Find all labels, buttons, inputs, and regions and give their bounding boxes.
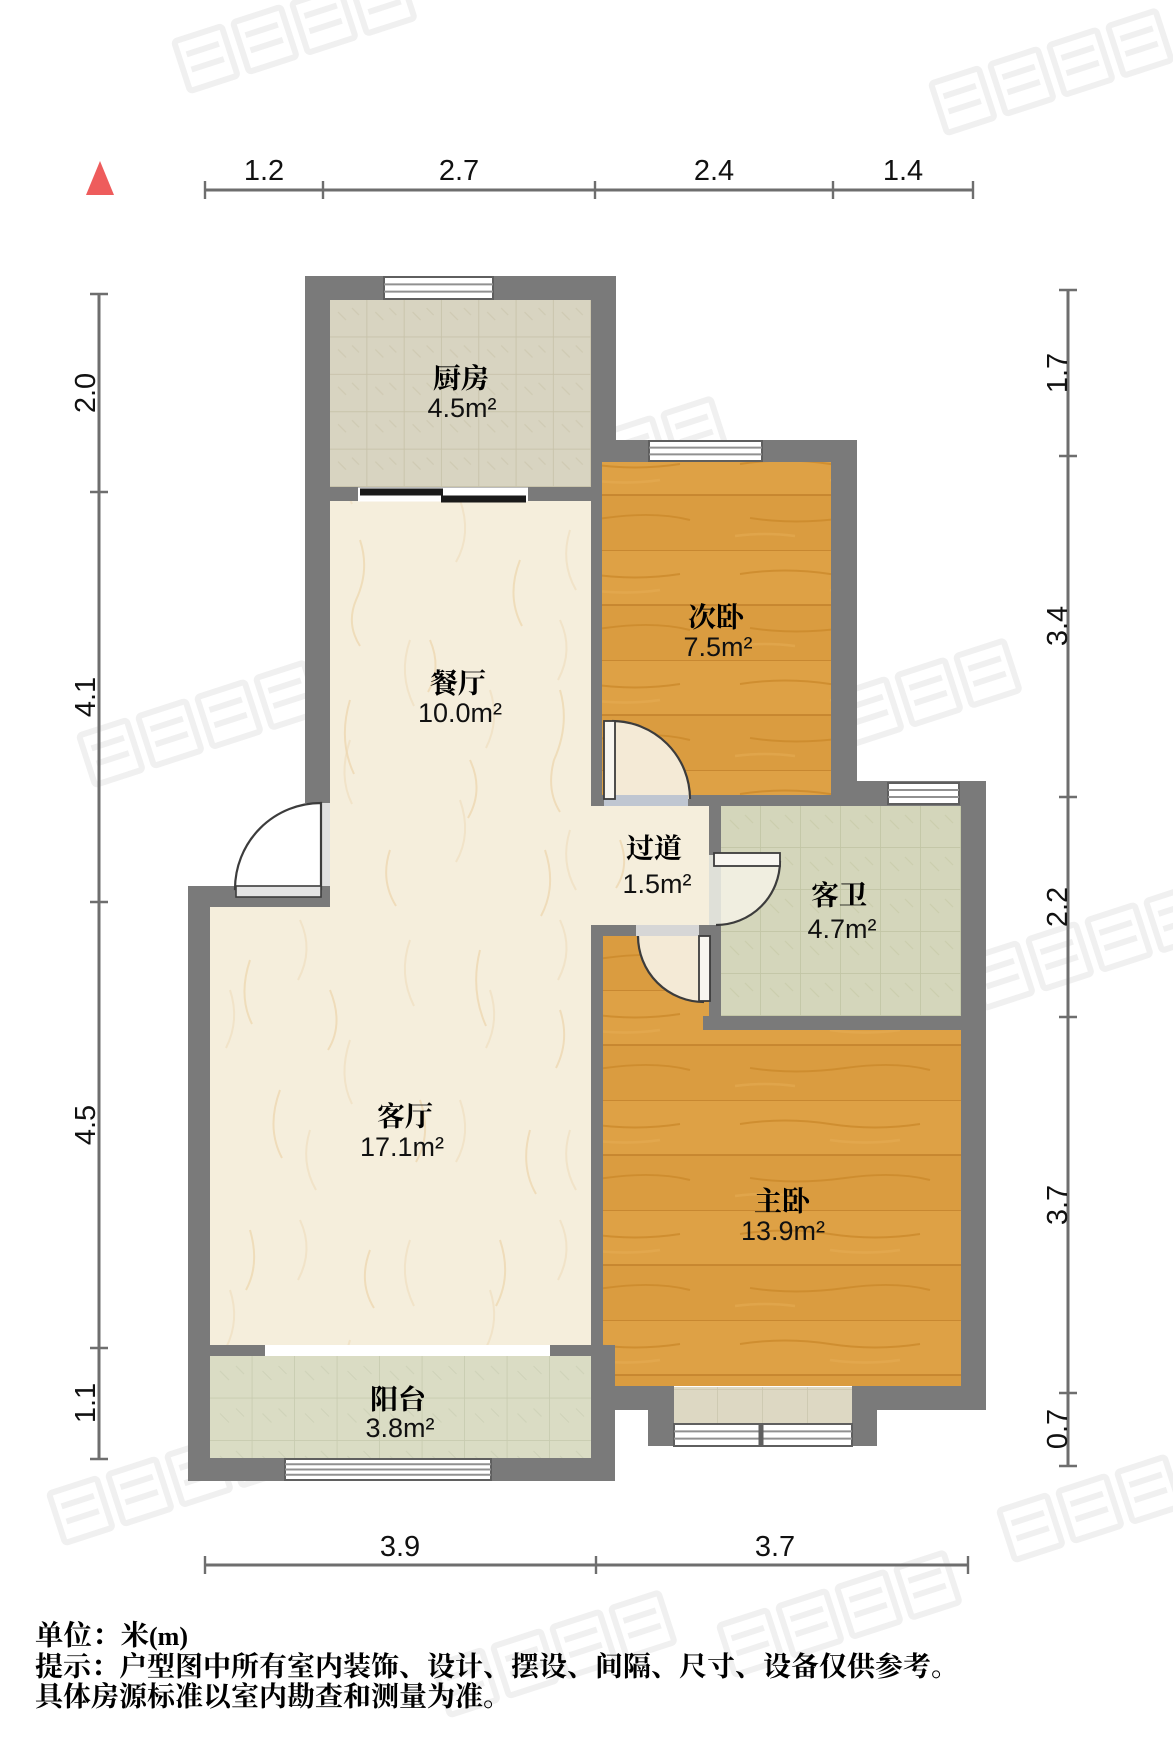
svg-text:2.4: 2.4 [694, 155, 734, 187]
svg-text:4.1: 4.1 [70, 677, 102, 717]
svg-text:2.0: 2.0 [70, 373, 102, 413]
svg-text:3.4: 3.4 [1042, 606, 1074, 646]
svg-text:10.0m²: 10.0m² [418, 698, 502, 728]
svg-text:3.8m²: 3.8m² [365, 1413, 434, 1443]
svg-text:4.5m²: 4.5m² [427, 393, 496, 423]
svg-text:1.4: 1.4 [883, 155, 923, 187]
svg-text:3.7: 3.7 [755, 1531, 795, 1563]
svg-text:0.7: 0.7 [1042, 1409, 1074, 1449]
svg-text:1.2: 1.2 [244, 155, 284, 187]
svg-text:2.7: 2.7 [439, 155, 479, 187]
svg-text:(m): (m) [149, 1622, 188, 1651]
svg-text:7.5m²: 7.5m² [683, 632, 752, 662]
svg-text:2.2: 2.2 [1042, 887, 1074, 927]
svg-text:1.5m²: 1.5m² [622, 869, 691, 899]
svg-text:1.7: 1.7 [1042, 353, 1074, 393]
svg-text:17.1m²: 17.1m² [360, 1132, 444, 1162]
svg-text:3.7: 3.7 [1042, 1185, 1074, 1225]
svg-text:1.1: 1.1 [70, 1383, 102, 1423]
svg-text:13.9m²: 13.9m² [741, 1216, 825, 1246]
svg-text:4.5: 4.5 [70, 1105, 102, 1145]
svg-text:4.7m²: 4.7m² [807, 914, 876, 944]
svg-text:3.9: 3.9 [380, 1531, 420, 1563]
